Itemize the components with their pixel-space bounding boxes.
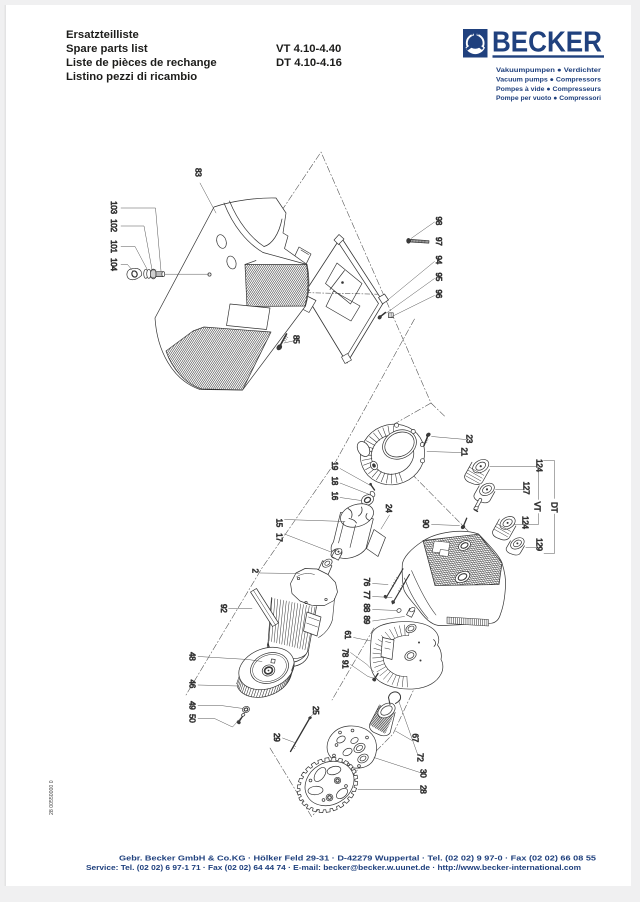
svg-text:DT: DT [550, 502, 559, 513]
svg-text:Pompes à vide ● Compresseurs: Pompes à vide ● Compresseurs [496, 86, 601, 93]
svg-text:88: 88 [362, 604, 371, 613]
svg-text:VT: VT [533, 502, 542, 512]
svg-text:Ersatzteilliste: Ersatzteilliste [66, 29, 139, 41]
svg-text:102: 102 [109, 219, 118, 233]
svg-text:92: 92 [219, 604, 228, 613]
svg-text:Vakuumpumpen ● Verdichter: Vakuumpumpen ● Verdichter [496, 67, 601, 74]
svg-text:19: 19 [330, 462, 339, 471]
svg-text:77: 77 [362, 591, 371, 600]
svg-text:Pompe per vuoto ● Compressori: Pompe per vuoto ● Compressori [496, 95, 601, 102]
svg-text:83: 83 [194, 168, 203, 177]
svg-text:Listino pezzi di ricambio: Listino pezzi di ricambio [66, 71, 197, 83]
svg-text:124: 124 [521, 516, 530, 530]
svg-text:98: 98 [434, 217, 443, 226]
svg-text:85: 85 [292, 335, 301, 344]
svg-text:21: 21 [460, 448, 469, 457]
svg-text:Vacuum pumps ● Compressors: Vacuum pumps ● Compressors [496, 76, 601, 83]
svg-text:50: 50 [188, 714, 197, 723]
svg-text:15: 15 [275, 519, 284, 528]
svg-text:91: 91 [341, 660, 350, 669]
svg-text:94: 94 [434, 256, 443, 265]
svg-text:124: 124 [535, 459, 544, 473]
svg-text:104: 104 [109, 258, 118, 272]
svg-text:24: 24 [384, 504, 393, 513]
svg-text:127: 127 [522, 482, 531, 496]
svg-text:18: 18 [330, 477, 339, 486]
svg-text:101: 101 [109, 240, 118, 254]
svg-text:103: 103 [109, 201, 118, 215]
svg-text:76: 76 [362, 578, 371, 587]
svg-text:28 00550000 0: 28 00550000 0 [49, 780, 55, 815]
svg-text:VT 4.10-4.40: VT 4.10-4.40 [276, 43, 341, 55]
svg-text:48: 48 [188, 652, 197, 661]
svg-text:129: 129 [535, 538, 544, 552]
svg-text:49: 49 [188, 701, 197, 710]
svg-text:2: 2 [251, 569, 260, 574]
svg-text:Gebr. Becker GmbH & Co.KG · Hö: Gebr. Becker GmbH & Co.KG · Hölker Feld … [119, 856, 596, 863]
svg-text:95: 95 [434, 273, 443, 282]
svg-text:BECKER: BECKER [492, 27, 602, 59]
svg-text:89: 89 [362, 616, 371, 625]
svg-text:61: 61 [343, 631, 352, 640]
svg-text:46: 46 [188, 680, 197, 689]
svg-text:72: 72 [416, 753, 425, 762]
svg-text:97: 97 [434, 237, 443, 246]
svg-text:90: 90 [421, 520, 430, 529]
svg-text:Spare parts list: Spare parts list [66, 43, 148, 55]
svg-text:78: 78 [341, 649, 350, 658]
svg-text:DT 4.10-4.16: DT 4.10-4.16 [276, 57, 342, 69]
svg-text:16: 16 [330, 492, 339, 501]
svg-text:23: 23 [465, 435, 474, 444]
svg-text:25: 25 [311, 706, 320, 715]
svg-text:17: 17 [275, 533, 284, 542]
svg-text:Liste de pièces de rechange: Liste de pièces de rechange [66, 57, 217, 69]
svg-text:29: 29 [272, 733, 281, 742]
svg-text:Service: Tel. (02 02) 6 97-1 7: Service: Tel. (02 02) 6 97-1 71 · Fax (0… [86, 865, 581, 872]
svg-text:96: 96 [434, 290, 443, 299]
